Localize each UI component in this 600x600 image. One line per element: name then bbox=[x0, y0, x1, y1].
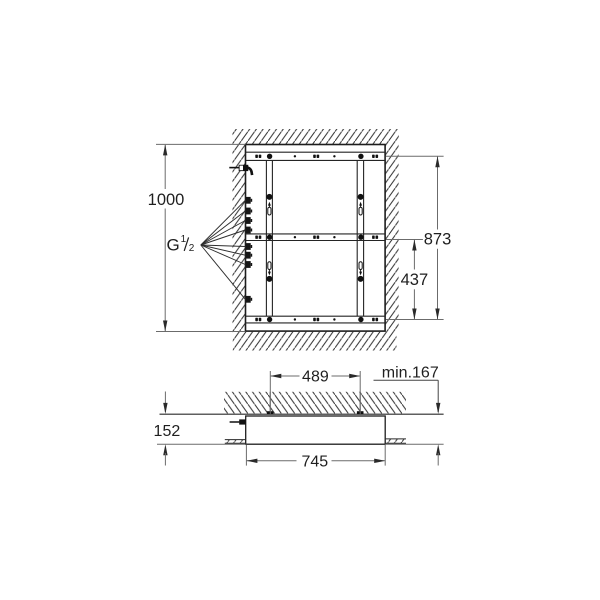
svg-text:437: 437 bbox=[401, 271, 429, 289]
svg-text:1000: 1000 bbox=[148, 191, 185, 209]
svg-text:152: 152 bbox=[154, 423, 181, 440]
svg-text:873: 873 bbox=[424, 231, 452, 249]
svg-text:1: 1 bbox=[181, 234, 187, 245]
svg-text:min.167: min.167 bbox=[382, 364, 439, 381]
svg-text:2: 2 bbox=[189, 243, 195, 254]
svg-text:489: 489 bbox=[302, 369, 329, 386]
svg-text:G: G bbox=[167, 236, 180, 255]
svg-text:745: 745 bbox=[301, 453, 328, 470]
